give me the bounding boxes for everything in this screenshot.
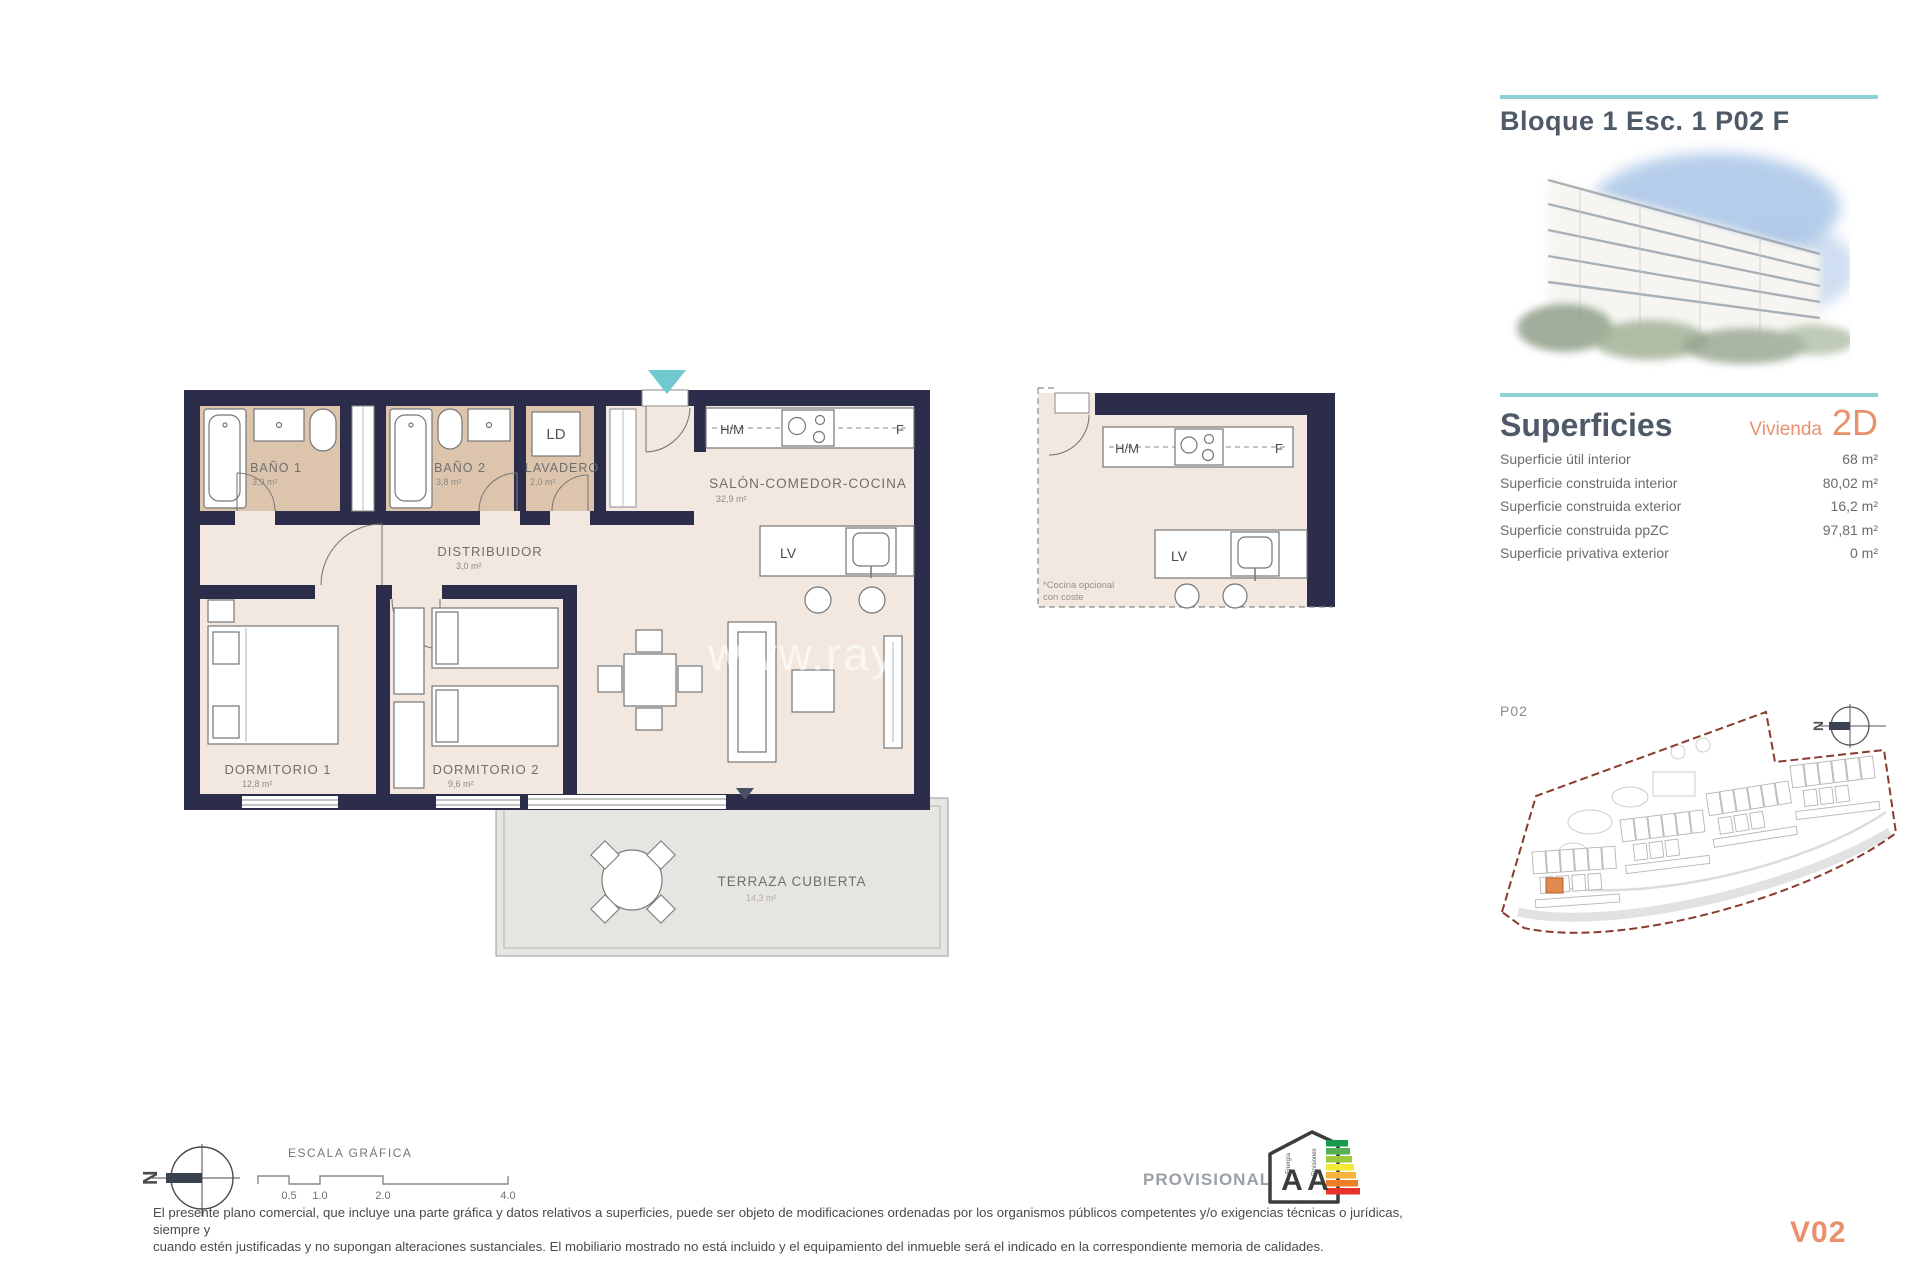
stool xyxy=(805,587,831,613)
siteplan-north-compass-icon: N xyxy=(1810,704,1886,748)
detail-note-line2: con coste xyxy=(1043,592,1084,603)
distribuidor-area: 3,0 m² xyxy=(456,561,482,571)
stool xyxy=(859,587,885,613)
dormitorio2-area: 9,6 m² xyxy=(448,779,474,789)
terrace: TERRAZA CUBIERTA 14,3 m² xyxy=(496,798,948,956)
disclaimer-line2: cuando estén justificadas y no supongan … xyxy=(153,1238,1433,1255)
disclaimer: El presente plano comercial, que incluye… xyxy=(153,1204,1433,1255)
detail-counter: H/M F xyxy=(1103,427,1293,467)
entrance-opening xyxy=(642,390,688,406)
dormitorio2-label: DORMITORIO 2 xyxy=(432,762,539,777)
scalebar: 0.5 1.0 2.0 4.0 xyxy=(256,1166,518,1206)
siteplan: N xyxy=(1488,700,1913,950)
salon-label: SALÓN-COMEDOR-COCINA xyxy=(709,476,907,491)
superficies-row: Superficie privativa exterior 0 m² xyxy=(1500,542,1878,566)
north-letter: N xyxy=(140,1171,162,1185)
lavadero-label: LAVADERO xyxy=(525,461,599,475)
fridge-label: F xyxy=(896,422,904,437)
superficies-heading: Superficies xyxy=(1500,407,1673,444)
row-value: 0 m² xyxy=(1850,542,1878,566)
row-value: 68 m² xyxy=(1842,448,1878,472)
watermark: www.ray xyxy=(707,628,896,680)
row-value: 16,2 m² xyxy=(1831,495,1878,519)
title-rule xyxy=(1500,95,1878,99)
row-value: 80,02 m² xyxy=(1823,472,1878,496)
row-label: Superficie construida exterior xyxy=(1500,495,1681,519)
windows xyxy=(242,795,726,809)
superficies-row: Superficie útil interior 68 m² xyxy=(1500,448,1878,472)
superficies-row: Superficie construida interior 80,02 m² xyxy=(1500,472,1878,496)
amenities xyxy=(1559,738,1710,861)
scale-tick: 0.5 xyxy=(281,1190,296,1202)
ld-label: LD xyxy=(546,426,565,443)
kitchen-counter: H/M F xyxy=(706,408,914,448)
superficies-row: Superficie construida ppZC 97,81 m² xyxy=(1500,519,1878,543)
terraza-label: TERRAZA CUBIERTA xyxy=(717,874,866,889)
scale-tick: 2.0 xyxy=(375,1190,390,1202)
superficies-row: Superficie construida exterior 16,2 m² xyxy=(1500,495,1878,519)
bano2-area: 3,8 m² xyxy=(436,477,462,487)
energy-bars xyxy=(1326,1140,1360,1195)
superficies-table: Superficie útil interior 68 m² Superfici… xyxy=(1500,448,1878,566)
hm-label: H/M xyxy=(720,422,744,437)
plan-sheet: TERRAZA CUBIERTA 14,3 m² xyxy=(0,0,1920,1280)
terraza-area: 14,3 m² xyxy=(746,893,777,903)
detail-note-line1: *Cocina opcional xyxy=(1043,580,1114,591)
dormitorio1-area: 12,8 m² xyxy=(242,779,273,789)
row-value: 97,81 m² xyxy=(1823,519,1878,543)
bano2-label: BAÑO 2 xyxy=(434,461,486,475)
building-illustration xyxy=(1510,138,1850,373)
page-title: Bloque 1 Esc. 1 P02 F xyxy=(1500,106,1790,137)
superficies-header: Superficies Vivienda 2D xyxy=(1500,402,1878,444)
kitchen-detail-plan: H/M F LV *Cocina opcional con coste xyxy=(1035,385,1335,625)
scalebar-title: ESCALA GRÁFICA xyxy=(288,1146,412,1160)
hob-icon xyxy=(782,410,834,446)
disclaimer-line1: El presente plano comercial, que incluye… xyxy=(153,1204,1433,1238)
siteplan-north-letter: N xyxy=(1810,721,1826,731)
vivienda-label: Vivienda xyxy=(1749,419,1822,441)
energy-letter: A xyxy=(1281,1164,1303,1197)
distribuidor-label: DISTRIBUIDOR xyxy=(437,544,542,559)
bano1-area: 3,9 m² xyxy=(252,477,278,487)
scale-tick: 1.0 xyxy=(312,1190,327,1202)
energy-rating-icon: Energía A Emisiones A xyxy=(1262,1124,1362,1206)
version-label: V02 xyxy=(1790,1216,1846,1250)
highlighted-unit xyxy=(1546,878,1563,893)
lv-label: LV xyxy=(780,545,797,561)
floorplan: TERRAZA CUBIERTA 14,3 m² xyxy=(180,368,960,968)
superficies-rule xyxy=(1500,393,1878,397)
detail-f-label: F xyxy=(1275,441,1283,456)
detail-hm-label: H/M xyxy=(1115,441,1139,456)
dormitorio1-label: DORMITORIO 1 xyxy=(224,762,331,777)
row-label: Superficie construida ppZC xyxy=(1500,519,1669,543)
emissions-letter: A xyxy=(1307,1164,1329,1197)
scale-tick: 4.0 xyxy=(500,1190,515,1202)
row-label: Superficie construida interior xyxy=(1500,472,1677,496)
lavadero-area: 2,0 m² xyxy=(530,477,556,487)
bano1-label: BAÑO 1 xyxy=(250,461,302,475)
row-label: Superficie útil interior xyxy=(1500,448,1631,472)
tipo-label: 2D xyxy=(1832,402,1878,444)
provisional-label: PROVISIONAL xyxy=(1143,1170,1271,1190)
salon-area: 32,9 m² xyxy=(716,494,747,504)
detail-lv-label: LV xyxy=(1171,548,1188,564)
row-label: Superficie privativa exterior xyxy=(1500,542,1669,566)
